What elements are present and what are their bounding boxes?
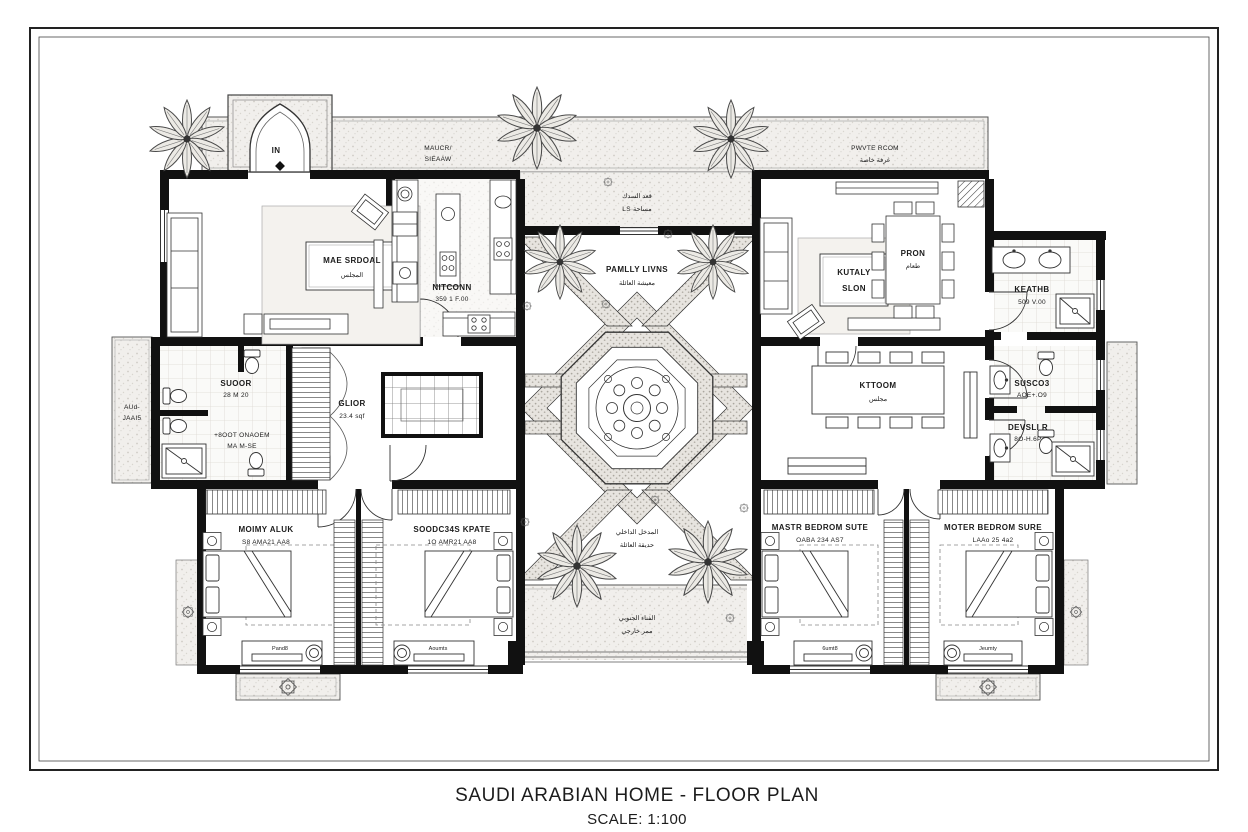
nightstand-icon <box>494 619 512 636</box>
dresser3-label: 6umt8 <box>822 646 837 652</box>
kitchen-label: NITCONN <box>432 283 471 292</box>
right-patio <box>1107 342 1137 484</box>
bath-suoor-sublabel: 28 M 20 <box>223 392 249 399</box>
bath-susco-label: SUSCO3 <box>1014 379 1049 388</box>
terrace-bottom-sublabel: ممر خارجي <box>621 627 653 635</box>
private-room-label: PWVTE RCOM <box>851 145 899 152</box>
bath-onaoem-sublabel: MA M-SE <box>227 443 257 450</box>
bed <box>966 551 1052 617</box>
courtyard-top-sublabel: LS مساحة <box>622 205 652 213</box>
living-label: MAE SRDOAL <box>323 256 381 265</box>
closet <box>938 490 1048 514</box>
closet <box>398 490 510 514</box>
bedroom3-sublabel: OABA 234 AS7 <box>796 537 844 544</box>
sink-icon <box>990 434 1010 462</box>
majlis-table <box>812 366 944 414</box>
terrace-top-sublabel: SIEAAW <box>425 156 452 163</box>
bath-onaoem-label: +8OOT ONAOEM <box>214 432 270 439</box>
toilet-icon <box>248 453 264 477</box>
media-unit <box>964 372 977 438</box>
sideboard <box>848 318 940 330</box>
nightstand-icon <box>761 533 779 550</box>
terrace-top-label: MAUCR/ <box>424 145 451 152</box>
hall-label: GLIOR <box>338 399 365 408</box>
porch-right <box>936 674 1040 700</box>
dresser <box>794 641 872 665</box>
sofa <box>167 213 202 337</box>
stairs <box>383 374 481 436</box>
sheet-title: SAUDI ARABIAN HOME - FLOOR PLAN <box>455 785 819 806</box>
patio-left-sublabel: JAAI5 <box>123 415 142 422</box>
closet <box>206 490 326 514</box>
nightstand-icon <box>203 619 221 636</box>
closet-strip <box>362 520 383 665</box>
nightstand-icon <box>1035 619 1053 636</box>
console <box>374 240 383 308</box>
bedroom1-label: MOIMY ALUK <box>238 525 293 534</box>
central-fountain <box>561 332 713 484</box>
floor-plan-sheet: IN <box>0 0 1248 832</box>
shower-icon <box>162 444 206 478</box>
dresser <box>944 641 1022 665</box>
entrance-label: IN <box>272 146 281 155</box>
patio-left-label: AUd- <box>124 404 140 411</box>
closet-strip <box>884 520 903 665</box>
bed <box>425 551 513 617</box>
majlis-label: KTTOOM <box>860 381 897 390</box>
kitchen-island <box>436 194 460 286</box>
right-side-strip <box>1064 560 1088 665</box>
toilet-icon <box>163 418 187 434</box>
courtyard-bottom-label: المدخل الداخلي <box>616 528 658 536</box>
closet-strip <box>334 520 355 665</box>
bed <box>203 551 291 617</box>
sheet-scale: SCALE: 1:100 <box>587 811 687 828</box>
dining-sublabel: طعام <box>906 262 921 270</box>
kitchen-sublabel: 359 1 F.00 <box>435 296 468 303</box>
sofa <box>760 218 792 314</box>
salon-label: KUTALY <box>837 268 871 277</box>
shower-icon <box>1056 294 1094 328</box>
dresser4-label: Jeumty <box>979 646 997 652</box>
bedroom4-label: MOTER BEDROM SURE <box>944 523 1042 532</box>
courtyard-bottom-sublabel: حديقة العائلة <box>620 541 654 549</box>
nightstand-icon <box>761 619 779 636</box>
toilet-icon <box>1038 352 1054 376</box>
family-label: PAMLLY LIVNS <box>606 265 668 274</box>
hob-icon <box>494 238 512 260</box>
bath-susco-sublabel: AOE+.O9 <box>1017 392 1047 399</box>
bedroom2-label: SOODC34S KPATE <box>413 525 491 534</box>
hatch-corner-square <box>958 181 984 207</box>
nightstand-icon <box>203 533 221 550</box>
sink-icon <box>990 366 1010 394</box>
nightstand-icon <box>494 533 512 550</box>
toilet-icon <box>244 350 260 374</box>
bottom-terrace <box>525 585 747 662</box>
bath-devsli-sublabel: 8O-H.6P <box>1014 436 1041 443</box>
bedroom2-sublabel: 1O AMR21 AA8 <box>427 539 476 546</box>
bedroom3-label: MASTR BEDROM SUTE <box>772 523 869 532</box>
dresser1-label: Pand8 <box>272 646 288 652</box>
bath-keathb-sublabel: 509 V.00 <box>1018 299 1046 306</box>
bath-suoor-label: SUOOR <box>220 379 251 388</box>
salon-sublabel: SLON <box>842 284 866 293</box>
porch-left <box>236 674 340 700</box>
family-sublabel: معيشة العائلة <box>619 279 656 287</box>
closet-strip <box>910 520 929 665</box>
entrance-tower: IN <box>228 95 332 172</box>
terrace-bottom-label: الفناء الجنوبي <box>619 614 656 622</box>
bed <box>762 551 848 617</box>
tv-bench <box>244 314 348 334</box>
living-sublabel: المجلس <box>341 271 363 279</box>
bath-devsli-label: DEVSLI R <box>1008 423 1048 432</box>
tv-console <box>836 182 938 194</box>
dresser <box>394 641 474 665</box>
majlis-sublabel: مجلس <box>869 395 888 403</box>
hall-sublabel: 23.4 sqf <box>339 413 365 420</box>
title-block: SAUDI ARABIAN HOME - FLOOR PLAN SCALE: 1… <box>455 785 819 828</box>
dining-label: PRON <box>901 249 926 258</box>
left-side-strip <box>176 560 200 665</box>
nightstand-icon <box>1035 533 1053 550</box>
stove-icon <box>468 315 490 333</box>
dresser2-label: Aoumts <box>429 646 448 652</box>
bath-keathb-label: KEATHB <box>1014 285 1049 294</box>
closet <box>764 490 874 514</box>
bedroom4-sublabel: LAAo 25 4a2 <box>973 537 1014 544</box>
courtyard-top-label: قعد السدك <box>622 192 652 200</box>
dresser <box>242 641 322 665</box>
private-room-sublabel: غرفة خاصة <box>860 156 891 164</box>
toilet-icon <box>163 388 187 404</box>
bedroom1-sublabel: S8 AMA21 AA8 <box>242 539 290 546</box>
shower-icon <box>1052 442 1094 476</box>
floor-plan-drawing: IN <box>0 0 1248 832</box>
